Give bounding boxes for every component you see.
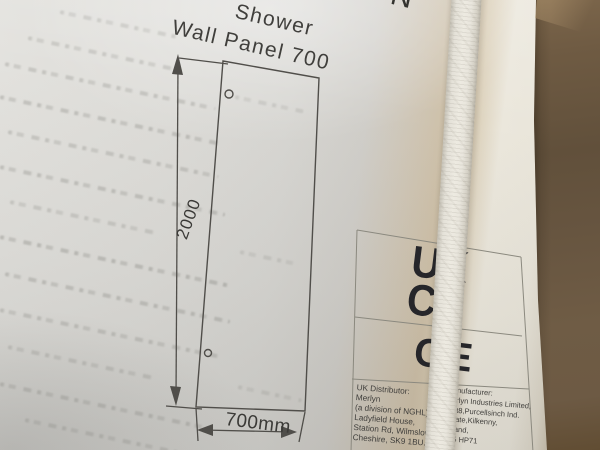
mounting-hole-bottom — [205, 350, 212, 357]
manufacturer-info: Manufacturer: Merlyn Industries Limited,… — [442, 385, 558, 450]
box-photo: N Shower Wall Panel 700 2000 700mm UK CA… — [0, 0, 600, 450]
mounting-hole-top — [225, 90, 233, 98]
panel-outline — [196, 61, 319, 411]
